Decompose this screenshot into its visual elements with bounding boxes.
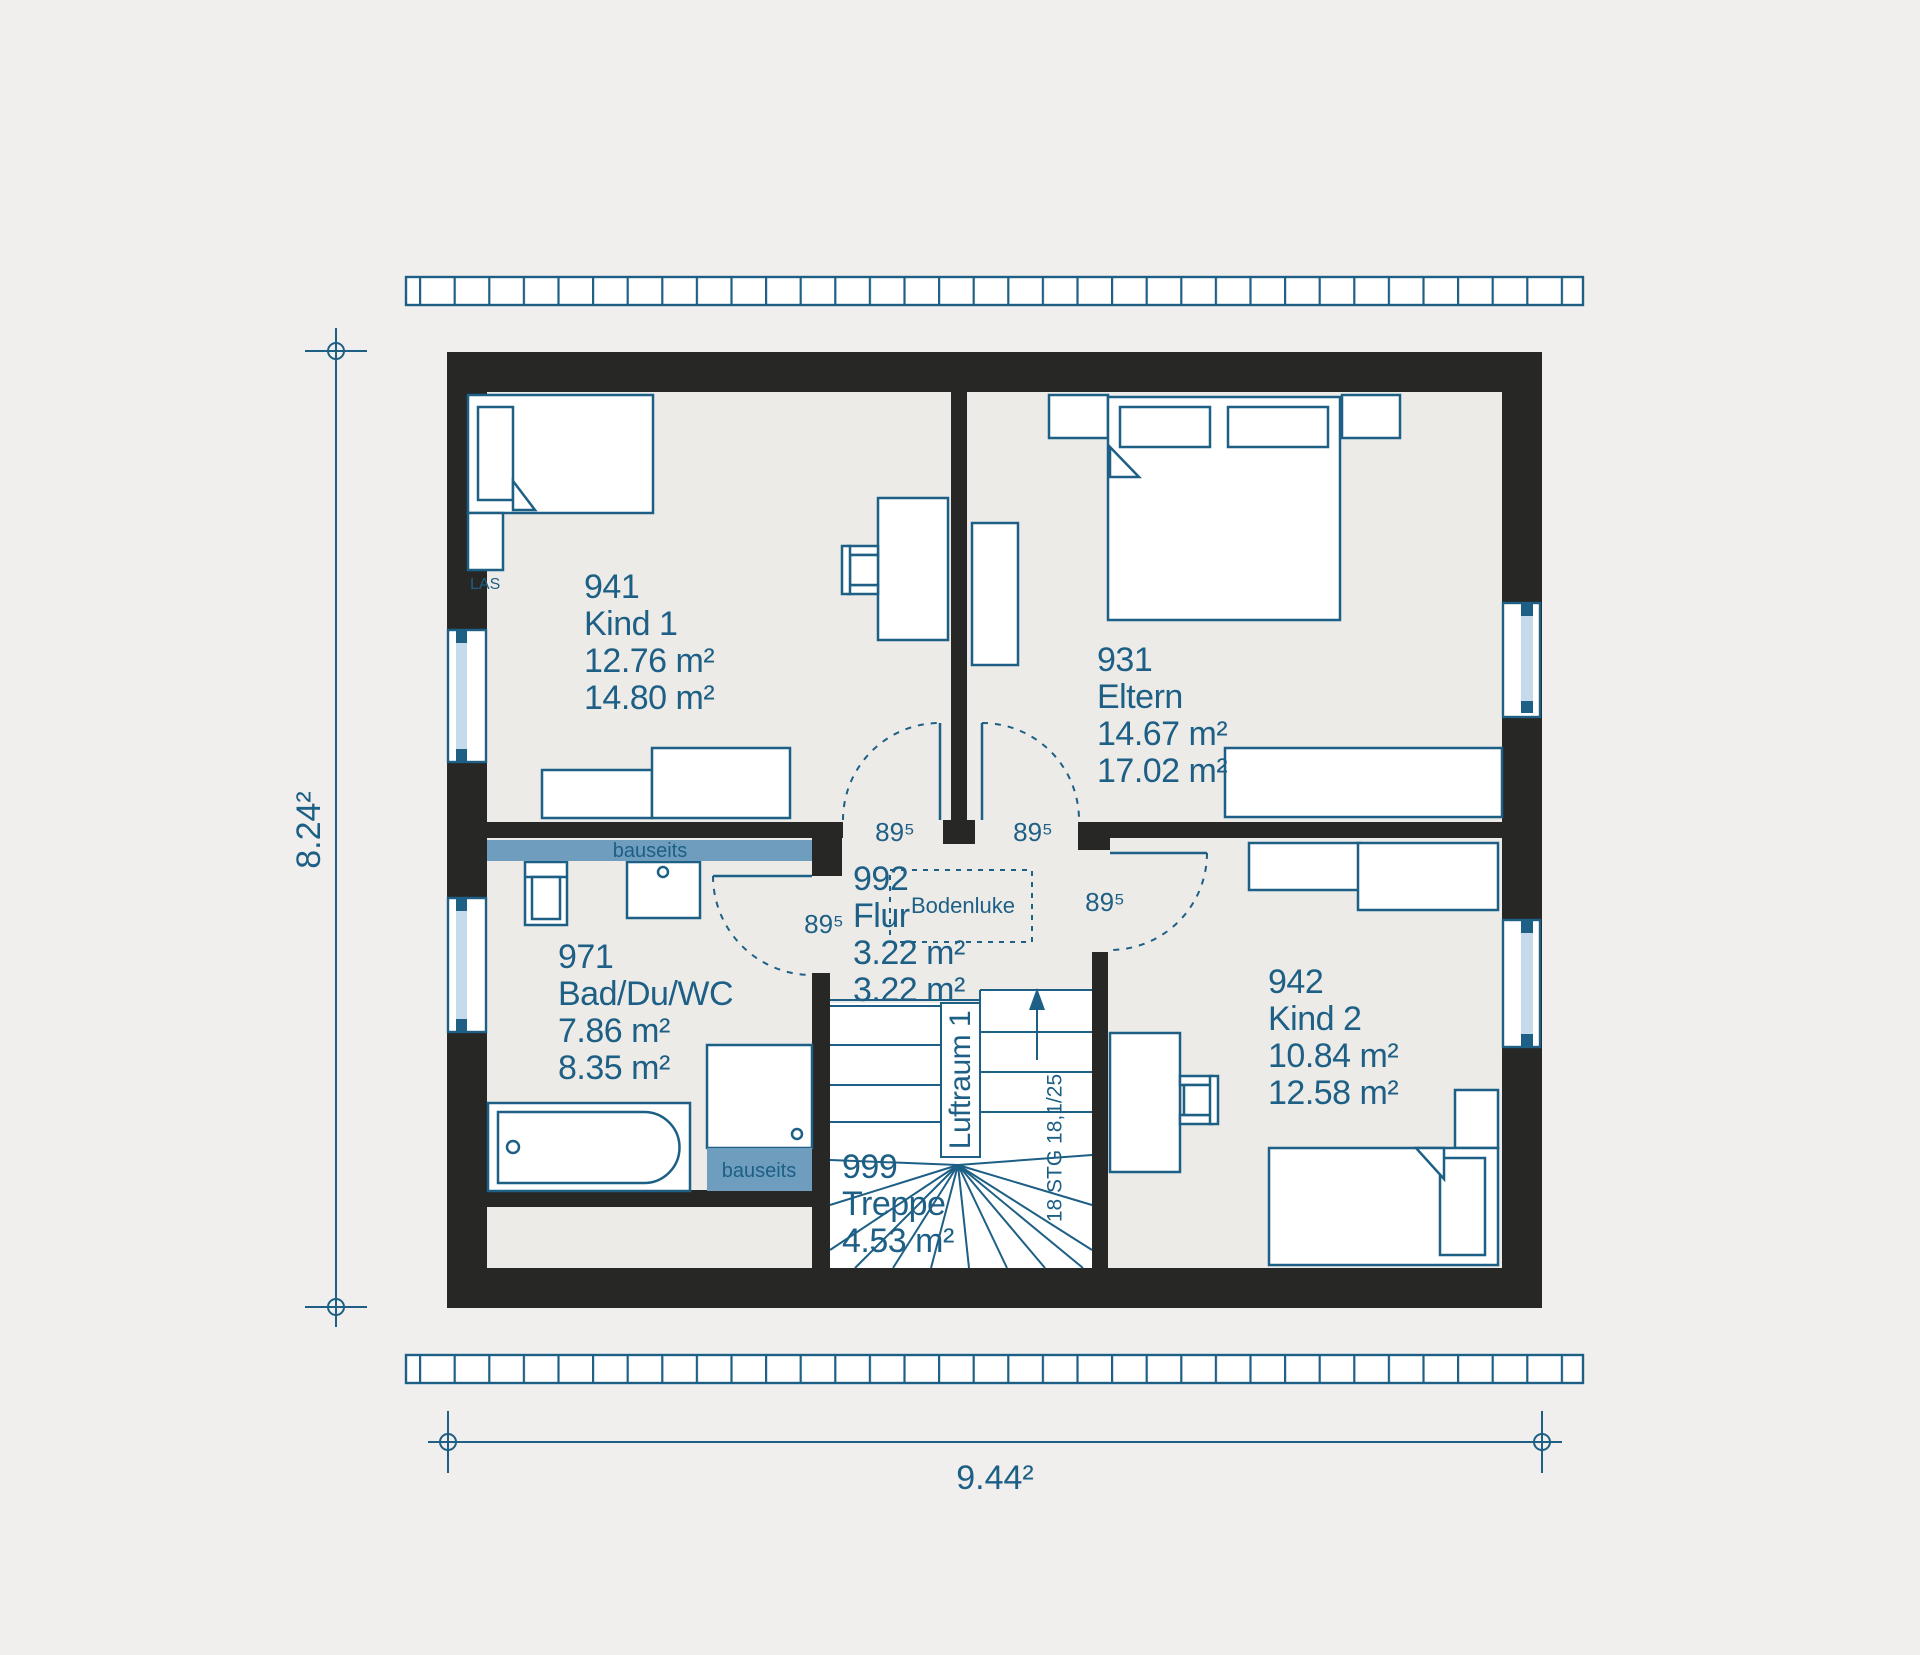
wall-stub-bad-door: [812, 838, 842, 876]
eltern-sideboard: [1225, 748, 1502, 817]
flur-living-area: 3.22 m²: [853, 971, 965, 1009]
sink: [627, 862, 700, 918]
window-eltern: [1503, 603, 1540, 717]
flur-floor-area: 3.22 m²: [853, 934, 965, 972]
kind2-floor-area: 10.84 m²: [1268, 1037, 1398, 1075]
width-dimension-label: 9.44²: [956, 1459, 1034, 1497]
wall-exterior-top: [447, 352, 1542, 392]
kind1-chair: [842, 546, 878, 594]
eltern-bed-pillow-left: [1120, 407, 1210, 447]
wall-bath-niche: [487, 1190, 812, 1207]
kind2-living-area: 12.58 m²: [1268, 1074, 1398, 1112]
kind1-sideboard-left: [542, 770, 652, 818]
kind2-shelf-right: [1358, 843, 1498, 910]
bauseits-label-top: bauseits: [613, 840, 688, 862]
bathtub: [488, 1103, 690, 1191]
eltern-bed-pillow-right: [1228, 407, 1328, 447]
kind1-floor-area: 12.76 m²: [584, 642, 714, 680]
roof-strip-top: [406, 277, 1583, 305]
toilet: [525, 862, 567, 925]
treppe-floor-area: 4.53 m²: [842, 1222, 954, 1260]
kind2-nightstand: [1455, 1090, 1498, 1148]
wall-exterior-right: [1502, 352, 1542, 1308]
kind2-chair: [1180, 1076, 1218, 1124]
eltern-name: Eltern: [1097, 678, 1183, 716]
dimension-horizontal: 9.44²: [428, 1411, 1562, 1497]
kind1-name: Kind 1: [584, 605, 677, 643]
wall-bad-treppe: [812, 973, 830, 1268]
bad-name: Bad/Du/WC: [558, 975, 733, 1013]
kind2-number: 942: [1268, 963, 1323, 1001]
flur-number: 992: [853, 860, 908, 898]
wall-stub-flur-center: [943, 820, 975, 844]
roof-strip-bottom: [406, 1355, 1583, 1383]
eltern-nightstand-right: [1342, 395, 1400, 438]
bodenluke-label: Bodenluke: [911, 893, 1015, 918]
wall-treppe-kind2: [1092, 952, 1108, 1268]
shower: [707, 1045, 812, 1148]
treppe-number: 999: [842, 1148, 897, 1186]
kind2-bed-pillow: [1440, 1158, 1485, 1255]
window-bad: [448, 898, 486, 1032]
kind2-desk: [1110, 1033, 1180, 1172]
flur-name: Flur: [853, 897, 910, 935]
window-kind1: [448, 630, 486, 762]
kind1-wardrobe: [468, 513, 503, 570]
kind1-bed-pillow: [478, 407, 513, 500]
wall-stub-kind2: [1078, 838, 1110, 850]
bauseits-box-shower: bauseits: [707, 1148, 812, 1191]
kind1-sideboard-right: [652, 748, 790, 818]
kind2-shelf-left: [1249, 843, 1360, 890]
window-kind2: [1503, 920, 1540, 1047]
wall-eltern-kind2: [1078, 822, 1502, 838]
bad-number: 971: [558, 938, 613, 976]
door-width-bad: 89⁵: [804, 909, 844, 939]
wall-kind1-bad: [487, 822, 843, 838]
floorplan-canvas: bauseits bauseits: [0, 0, 1920, 1655]
wall-exterior-bottom: [447, 1268, 1542, 1308]
stair-note-label: 18 STG 18,1/25: [1044, 1074, 1067, 1222]
eltern-floor-area: 14.67 m²: [1097, 715, 1227, 753]
eltern-nightstand-left: [1049, 395, 1108, 438]
bauseits-label-shower: bauseits: [722, 1160, 797, 1182]
kind1-number: 941: [584, 568, 639, 606]
bad-floor-area: 7.86 m²: [558, 1012, 670, 1050]
bad-living-area: 8.35 m²: [558, 1049, 670, 1087]
door-width-eltern: 89⁵: [1013, 817, 1053, 847]
door-width-kind1: 89⁵: [875, 817, 915, 847]
eltern-wardrobe: [972, 523, 1018, 665]
bauseits-bar-top: bauseits: [487, 840, 812, 862]
treppe-name: Treppe: [842, 1185, 945, 1223]
kind2-name: Kind 2: [1268, 1000, 1361, 1038]
kind1-desk: [878, 498, 948, 640]
luftraum-label: Luftraum 1: [944, 1011, 977, 1149]
kind1-living-area: 14.80 m²: [584, 679, 714, 717]
height-dimension-label: 8.24²: [290, 791, 328, 869]
las-label: LAS: [470, 576, 500, 593]
eltern-number: 931: [1097, 641, 1152, 679]
wall-kind1-eltern: [951, 392, 967, 822]
door-width-kind2: 89⁵: [1085, 887, 1125, 917]
eltern-living-area: 17.02 m²: [1097, 752, 1227, 790]
floorplan-drawing: bauseits bauseits: [0, 0, 1920, 1655]
dimension-vertical: 8.24²: [290, 328, 367, 1327]
